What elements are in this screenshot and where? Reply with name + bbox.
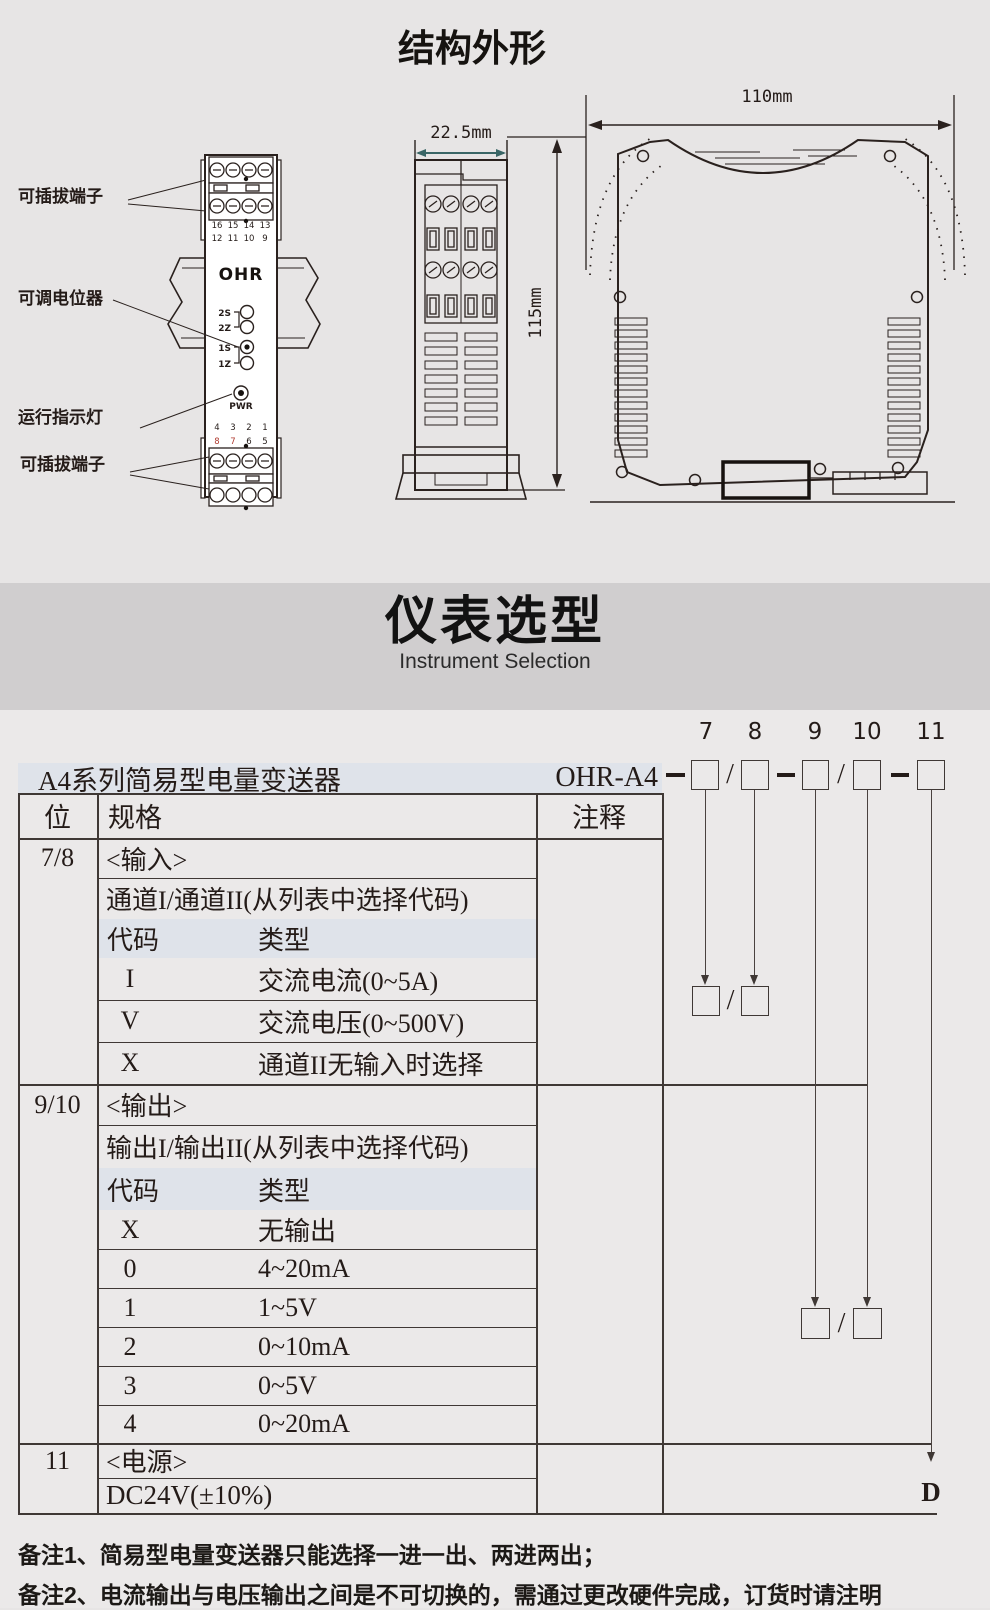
- code-header: 代码: [107, 919, 159, 958]
- code-dash: [891, 773, 909, 777]
- code-digit-11: 11: [911, 716, 951, 748]
- module-side-outline: [415, 160, 507, 490]
- profile-width-label: 110mm: [741, 87, 792, 107]
- type-value: 0~10mA: [258, 1327, 350, 1366]
- profile-width-dimension: [565, 95, 954, 270]
- code-value: X: [110, 1042, 150, 1084]
- table-border-bottom: [18, 1513, 937, 1515]
- power-code-letter: D: [913, 1476, 949, 1509]
- col-header-note: 注释: [536, 793, 662, 838]
- banner-subtitle: Instrument Selection: [0, 650, 990, 674]
- model-prefix: OHR-A4: [536, 762, 658, 794]
- profile-screw-holes: [615, 151, 923, 486]
- svg-text:16: 16: [212, 221, 223, 231]
- code-slash: /: [719, 758, 741, 792]
- type-value: 交流电压(0~500V): [258, 1000, 464, 1042]
- type-value: 0~5V: [258, 1366, 317, 1405]
- code-value: V: [110, 1000, 150, 1042]
- leader-line-7: [705, 790, 706, 976]
- code-dash: [777, 773, 795, 777]
- code-value: 4: [110, 1405, 150, 1443]
- code-value: 3: [110, 1366, 150, 1405]
- code-digit-9: 9: [795, 716, 835, 748]
- svg-text:8: 8: [214, 437, 219, 447]
- label-run-indicator: 运行指示灯: [18, 407, 103, 427]
- height-dimension: 115mm: [507, 137, 565, 490]
- code-value: I: [110, 958, 150, 1000]
- type-value: 0~20mA: [258, 1405, 350, 1443]
- terminal-block-top: [209, 157, 273, 223]
- terminal-block-bottom: [209, 444, 273, 510]
- section-heading-power: <电源>: [106, 1443, 187, 1478]
- svg-text:3: 3: [230, 423, 235, 433]
- label-adjustable-potentiometer: 可调电位器: [18, 288, 104, 308]
- profile-vents: [615, 318, 920, 457]
- table-border: [18, 793, 20, 1513]
- code-digit-10: 10: [847, 716, 887, 748]
- code-value: 0: [110, 1249, 150, 1288]
- front-view-drawing: 16 15 14 13 12 11 10 9 OHR 2S 2Z 1S 1Z P…: [10, 140, 340, 515]
- section-pos-11: 11: [18, 1443, 97, 1478]
- banner-title: 仪表选型: [0, 595, 990, 650]
- height-dimension-label: 115mm: [526, 287, 546, 338]
- output-pair-box-1: [801, 1308, 830, 1339]
- table-border: [662, 793, 664, 1513]
- code-value: X: [110, 1210, 150, 1249]
- code-box-9: [802, 760, 829, 790]
- profile-body: [618, 140, 928, 485]
- output-pair-slash: /: [830, 1307, 853, 1340]
- type-value: 无输出: [258, 1210, 336, 1249]
- section-heading-input: <输入>: [106, 838, 187, 878]
- arrow-down: [701, 975, 709, 985]
- code-value: 2: [110, 1327, 150, 1366]
- col-header-position: 位: [18, 793, 97, 838]
- arrow-down: [863, 1297, 871, 1307]
- page-title: 结构外形: [0, 18, 944, 72]
- width-dimension-label: 22.5mm: [430, 123, 491, 143]
- type-value: 通道II无输入时选择: [258, 1042, 483, 1084]
- section-banner: 仪表选型 Instrument Selection: [0, 583, 990, 710]
- power-spec: DC24V(±10%): [106, 1478, 272, 1513]
- code-dash: [666, 773, 685, 777]
- svg-text:15: 15: [228, 221, 239, 231]
- code-box-8: [741, 760, 769, 790]
- svg-text:1: 1: [262, 423, 267, 433]
- leader-line-10: [867, 790, 868, 1298]
- side-vents: [425, 333, 497, 425]
- code-slash: /: [829, 758, 853, 792]
- type-value: 交流电流(0~5A): [258, 958, 438, 1000]
- input-pair-slash: /: [720, 985, 741, 1017]
- leader-line-8: [754, 790, 755, 976]
- code-box-10: [853, 760, 881, 790]
- leader-line-11: [931, 790, 932, 1452]
- svg-text:12: 12: [212, 234, 223, 244]
- code-digit-7: 7: [686, 716, 726, 748]
- svg-text:5: 5: [262, 437, 267, 447]
- note-1: 备注1、简易型电量变送器只能选择一进一出、两进两出；: [18, 1538, 606, 1568]
- input-pair-box-1: [692, 986, 720, 1016]
- section-sub-input: 通道I/通道II(从列表中选择代码): [106, 878, 469, 919]
- type-header: 类型: [258, 919, 310, 958]
- code-header-band-output: [98, 1168, 536, 1210]
- svg-text:2: 2: [246, 423, 251, 433]
- section-sub-output: 输出I/输出II(从列表中选择代码): [106, 1125, 469, 1168]
- code-header: 代码: [107, 1168, 159, 1210]
- section-pos-910: 9/10: [18, 1084, 97, 1125]
- input-pair-box-2: [741, 986, 769, 1016]
- col-header-spec: 规格: [108, 793, 162, 838]
- brand-logo: OHR: [219, 265, 264, 285]
- svg-text:PWR: PWR: [229, 402, 253, 412]
- svg-text:11: 11: [228, 234, 239, 244]
- leader-line-9: [815, 790, 816, 1298]
- product-name: A4系列简易型电量变送器: [38, 763, 341, 793]
- svg-text:13: 13: [260, 221, 271, 231]
- arrow-down: [927, 1452, 935, 1462]
- code-digit-8: 8: [735, 716, 775, 748]
- label-pluggable-terminals-bottom: 可插拔端子: [20, 454, 105, 474]
- arrow-down: [750, 975, 758, 985]
- svg-text:4: 4: [214, 423, 219, 433]
- code-header-band-input: [98, 919, 536, 958]
- svg-text:9: 9: [262, 234, 267, 244]
- svg-text:2S: 2S: [218, 309, 231, 319]
- section-pos-78: 7/8: [18, 838, 97, 878]
- code-value: 1: [110, 1288, 150, 1327]
- arrow-down: [811, 1297, 819, 1307]
- svg-text:2Z: 2Z: [218, 324, 231, 334]
- type-value: 4~20mA: [258, 1249, 350, 1288]
- type-header: 类型: [258, 1168, 310, 1210]
- svg-text:14: 14: [244, 221, 255, 231]
- svg-text:7: 7: [230, 437, 235, 447]
- type-value: 1~5V: [258, 1288, 317, 1327]
- code-box-7: [691, 760, 719, 790]
- output-pair-box-2: [853, 1308, 882, 1339]
- note-2: 备注2、电流输出与电压输出之间是不可切换的，需通过更改硬件完成，订货时请注明: [18, 1578, 882, 1608]
- table-border: [536, 793, 538, 1513]
- profile-view-drawing: 110mm: [565, 80, 990, 505]
- side-din-clip: [396, 447, 526, 499]
- label-pluggable-terminals-top: 可插拔端子: [18, 186, 103, 206]
- svg-text:10: 10: [244, 234, 255, 244]
- code-box-11: [917, 760, 945, 790]
- side-view-drawing: 22.5mm: [395, 110, 565, 510]
- svg-text:1S: 1S: [218, 344, 231, 354]
- section-heading-output: <输出>: [106, 1084, 187, 1125]
- svg-text:1Z: 1Z: [218, 360, 231, 370]
